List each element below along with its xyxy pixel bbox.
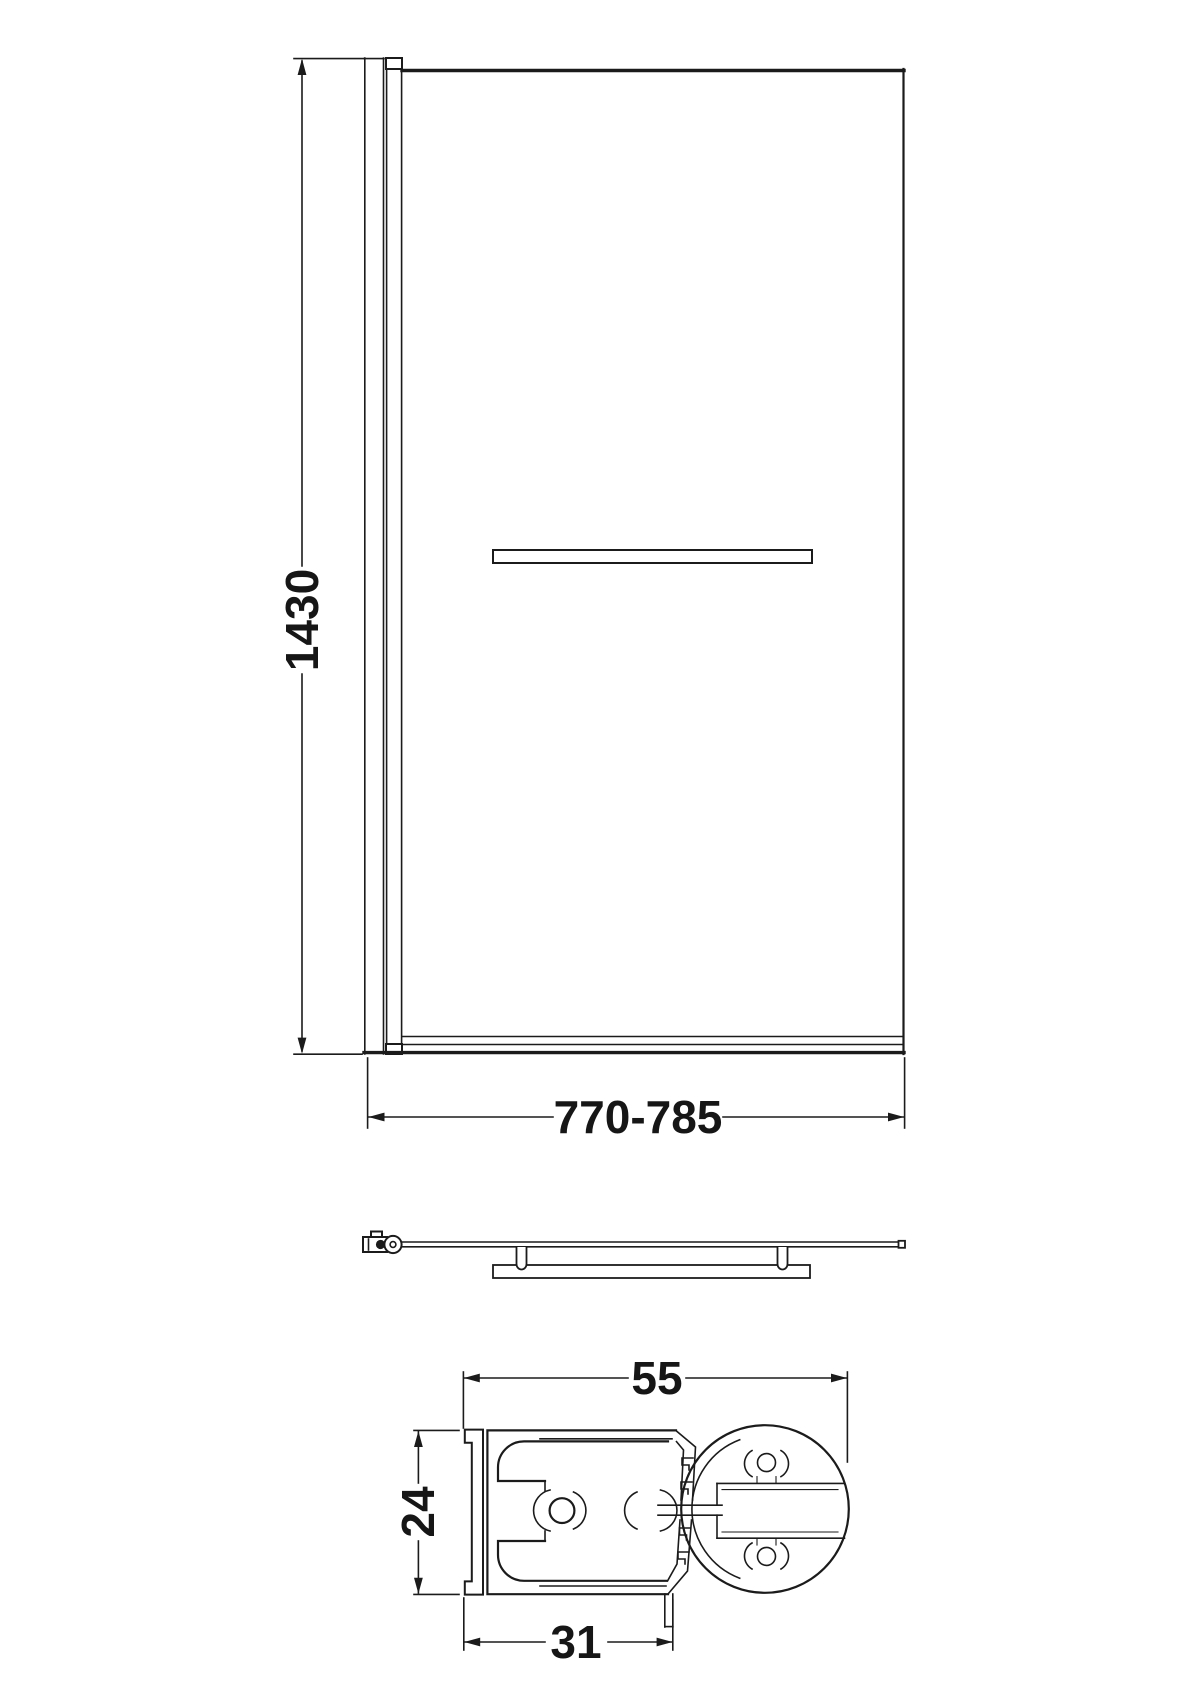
bracket-top-tab — [371, 1232, 382, 1238]
plan-view — [363, 1232, 905, 1279]
plan-wall-bracket — [363, 1232, 402, 1254]
section-width-arrow-right — [831, 1374, 847, 1383]
plan-towel-bar-post-right — [778, 1247, 788, 1270]
glass-panel — [364, 58, 904, 1054]
channel-cavity-upper — [498, 1441, 668, 1481]
clamp-screw-boss — [550, 1498, 575, 1523]
section-channel-dimension: 31 — [464, 1598, 673, 1668]
channel-outer-outline — [487, 1430, 676, 1594]
section-width-label: 55 — [631, 1352, 682, 1404]
section-depth-arrow-up — [414, 1431, 423, 1447]
section-depth-label: 24 — [392, 1486, 444, 1538]
section-width-arrow-left — [464, 1374, 480, 1383]
wall-profile-channel — [364, 58, 384, 1054]
width-dim-arrow-right — [888, 1113, 904, 1122]
towel-bar — [493, 550, 812, 563]
clamp2-jaw-left-arc — [625, 1492, 637, 1529]
wall-bracket-profile — [465, 1430, 483, 1595]
clamp2-jaw-right-arc — [661, 1490, 677, 1531]
round-profile-outer — [681, 1425, 849, 1593]
channel-dimension-label: 31 — [550, 1616, 601, 1668]
clover-bottom-wing-right — [781, 1543, 789, 1569]
front-view: 1430 770-785 — [276, 58, 905, 1143]
wall-bracket-outline — [465, 1430, 483, 1595]
clover-top-wing-right — [781, 1451, 789, 1477]
height-dim-arrow-down — [298, 1038, 307, 1054]
width-dimension: 770-785 — [368, 1058, 905, 1143]
comb-inner-lower — [668, 1520, 681, 1581]
height-dimension-label: 1430 — [276, 569, 328, 671]
clover-top-boss — [758, 1454, 776, 1472]
plan-towel-bar — [493, 1265, 810, 1278]
channel-dim-arrow-right — [657, 1638, 673, 1647]
plan-glass-end-cap — [899, 1241, 906, 1248]
glass-top-cap — [386, 58, 402, 69]
height-dimension: 1430 — [276, 59, 363, 1055]
height-dim-arrow-up — [298, 59, 307, 75]
pivot-ring — [384, 1236, 401, 1253]
glass-stub — [665, 1594, 673, 1627]
clover-clamp-top — [744, 1451, 788, 1484]
clover-top-wing-left — [744, 1451, 752, 1477]
clover-bottom-boss — [758, 1547, 776, 1565]
clover-bottom-wing-left — [744, 1543, 752, 1569]
plan-towel-bar-post-left — [517, 1247, 527, 1270]
section-depth-arrow-down — [414, 1578, 423, 1594]
clover-clamp-bottom — [744, 1538, 788, 1569]
clamp-jaw-left-arc — [534, 1490, 550, 1531]
comb-hook-4 — [678, 1552, 689, 1564]
section-depth-dimension: 24 — [392, 1430, 459, 1594]
width-dimension-label: 770-785 — [554, 1091, 723, 1143]
round-profile-inner-wall — [692, 1440, 740, 1578]
round-profile — [681, 1425, 849, 1593]
width-dim-arrow-left — [368, 1113, 384, 1122]
bath-screen-technical-drawing: 1430 770-785 — [0, 0, 1200, 1698]
channel-dim-arrow-left — [464, 1638, 480, 1647]
section-width-dimension: 55 — [463, 1352, 847, 1462]
section-view: 55 24 — [392, 1352, 849, 1668]
channel-cavity-lower — [498, 1541, 666, 1581]
